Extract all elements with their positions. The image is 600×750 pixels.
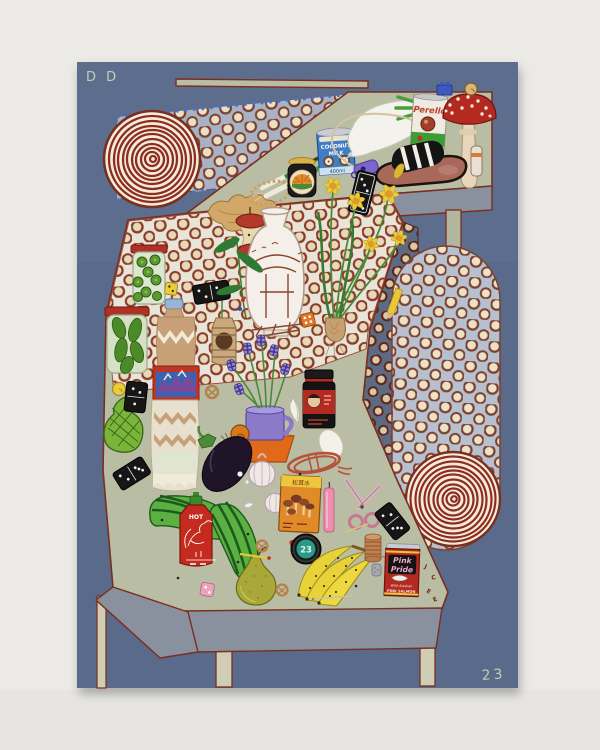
domino-left-1 bbox=[124, 381, 148, 413]
hot-label: HOT bbox=[189, 514, 204, 521]
orange-dice bbox=[300, 312, 316, 328]
glue-stick bbox=[471, 146, 482, 176]
right-table-leg bbox=[420, 644, 435, 686]
matsutake-label: 松茸水 bbox=[292, 479, 310, 488]
snail-shell-small bbox=[465, 83, 477, 95]
pink-dice bbox=[200, 582, 215, 597]
artwork-photo: COCONUT MILK 400ml Perello bbox=[0, 0, 600, 750]
pickle-jar bbox=[105, 307, 149, 376]
coconut-volume: 400ml bbox=[330, 168, 346, 175]
upper-table-leg bbox=[446, 210, 461, 248]
water-bottle bbox=[151, 299, 199, 491]
signature-year: 23 bbox=[481, 666, 506, 684]
painting: COCONUT MILK 400ml Perello bbox=[0, 0, 600, 750]
matsutake-packet: 松茸水 bbox=[279, 475, 322, 533]
canvas: COCONUT MILK 400ml Perello bbox=[77, 62, 518, 688]
sunrise-jar bbox=[288, 158, 316, 198]
signature-initials: D D bbox=[86, 70, 119, 85]
pink-salmon-can: Pink Pride Wild Alaskan PINK SALMON bbox=[384, 543, 420, 596]
chilli-sauce-jar bbox=[303, 370, 335, 428]
pinkpride-line3: Wild Alaskan bbox=[390, 584, 412, 589]
spiral-rug-top bbox=[104, 111, 200, 207]
yellow-dice bbox=[164, 282, 178, 296]
pinkpride-line2: Pride bbox=[391, 565, 414, 575]
table-back-rail bbox=[176, 79, 368, 88]
pink-candle bbox=[324, 482, 334, 532]
thimble bbox=[372, 564, 381, 576]
tape-measure-number: 23 bbox=[300, 546, 312, 556]
left-table-leg bbox=[97, 596, 106, 688]
olive-jar bbox=[131, 245, 167, 304]
table-apron-front bbox=[183, 608, 442, 652]
snail-shell-yellow bbox=[113, 383, 126, 396]
